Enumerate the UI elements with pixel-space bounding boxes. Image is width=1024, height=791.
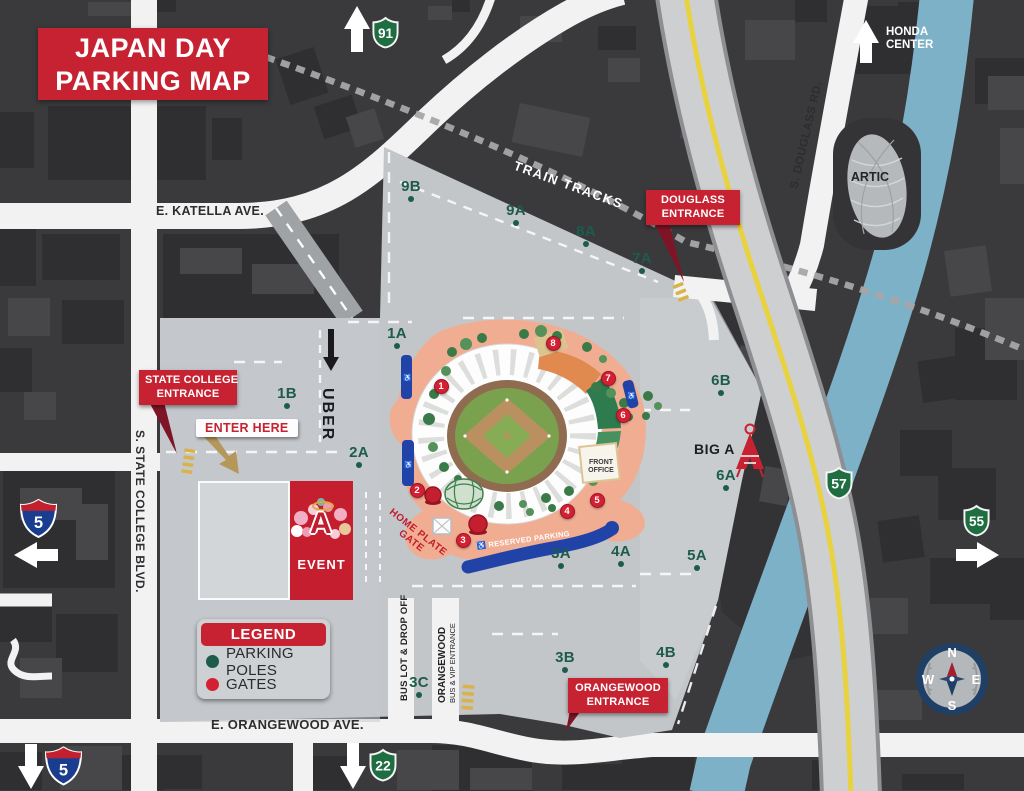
gate-1: 1 — [434, 379, 449, 394]
parking-pole-4B: 4B — [646, 646, 686, 660]
parking-pole-2A: 2A — [339, 446, 379, 460]
title-line1: JAPAN DAY — [38, 32, 268, 65]
legend-item-parking-poles: PARKING POLES — [197, 650, 330, 673]
wheelchair-icon: ♿ — [627, 391, 636, 400]
route-57-number: 57 — [831, 476, 847, 492]
vip-entrance-line1: ORANGEWOOD — [437, 623, 448, 703]
parking-pole-6A: 6A — [706, 469, 746, 483]
parking-pole-dot-icon — [206, 655, 219, 668]
honda-center-line1: HONDA — [886, 26, 933, 39]
interstate-5-shield-south: 5 — [44, 745, 83, 787]
wheelchair-icon: ♿ — [476, 541, 487, 551]
vip-entrance-line2: BUS & VIP ENTRANCE — [448, 623, 457, 703]
uber-lane-label: UBER — [318, 388, 336, 441]
interstate-5-number: 5 — [59, 761, 68, 780]
gate-5: 5 — [590, 493, 605, 508]
event-parking-lot — [198, 481, 290, 600]
big-a-label: BIG A — [694, 441, 735, 457]
parking-pole-1A: 1A — [377, 327, 417, 341]
gate-4: 4 — [560, 504, 575, 519]
front-office-label: FRONT OFFICE — [581, 459, 621, 475]
gate-6: 6 — [616, 408, 631, 423]
compass-w: W — [922, 672, 935, 687]
parking-pole-9A: 9A — [496, 204, 536, 218]
orangewood-ave-label: E. ORANGEWOOD AVE. — [211, 717, 364, 732]
gate-3: 3 — [456, 533, 471, 548]
artic-station — [833, 118, 921, 250]
state-college-entrance-badge: STATE COLLEGE ENTRANCE — [139, 370, 237, 405]
front-office-line1: FRONT — [581, 459, 621, 467]
parking-pole-5A: 5A — [677, 549, 717, 563]
parking-pole-3C: 3C — [399, 676, 439, 690]
wheelchair-icon: ♿ — [404, 460, 413, 469]
route-57-shield: 57 — [824, 466, 854, 500]
route-91-number: 91 — [378, 26, 394, 41]
legend: LEGEND PARKING POLES GATES — [197, 619, 330, 699]
team-store — [433, 518, 451, 534]
parking-pole-3A: 3A — [541, 547, 581, 561]
parking-pole-9B: 9B — [391, 180, 431, 194]
legend-parking-poles-label: PARKING POLES — [226, 645, 330, 679]
gate-8: 8 — [546, 336, 561, 351]
douglass-entrance-line2: ENTRANCE — [652, 207, 734, 221]
title-line2: PARKING MAP — [38, 65, 268, 98]
interstate-5-number: 5 — [34, 513, 43, 532]
honda-center-line2: CENTER — [886, 39, 933, 52]
douglass-entrance-line1: DOUGLASS — [652, 193, 734, 207]
honda-center-label: HONDA CENTER — [886, 26, 933, 52]
compass-rose: N E S W — [914, 641, 990, 717]
compass-e: E — [972, 672, 981, 687]
douglass-entrance-badge: DOUGLASS ENTRANCE — [646, 190, 740, 225]
parking-pole-1B: 1B — [267, 387, 307, 401]
route-22-number: 22 — [375, 758, 391, 774]
event-label: EVENT — [290, 557, 353, 572]
angels-a-logo-icon: A — [310, 507, 332, 541]
gate-2: 2 — [410, 483, 425, 498]
legend-header: LEGEND — [201, 623, 326, 646]
compass-s: S — [948, 698, 957, 713]
interstate-5-shield: 5 — [19, 498, 58, 539]
pitchers-mound — [504, 433, 510, 439]
route-55-shield: 55 — [962, 504, 991, 537]
legend-gates-label: GATES — [226, 676, 277, 693]
parking-pole-4A: 4A — [601, 545, 641, 559]
character-icon — [339, 523, 351, 535]
front-office-line2: OFFICE — [581, 467, 621, 475]
flower-icon — [294, 511, 308, 525]
compass-n: N — [947, 645, 956, 660]
route-22-shield: 22 — [368, 748, 398, 782]
artic-label: ARTIC — [849, 170, 891, 184]
vip-entrance-label: ORANGEWOOD BUS & VIP ENTRANCE — [437, 623, 457, 703]
parking-map: ♿ ♿ ♿ JAPAN DAY PARKING MAP 91 57 55 22 — [0, 0, 1024, 791]
parking-pole-8A: 8A — [566, 225, 606, 239]
lattice-dome — [445, 479, 483, 509]
katella-ave-label: E. KATELLA AVE. — [156, 204, 264, 218]
parking-pole-6B: 6B — [701, 374, 741, 388]
orangewood-entrance-badge: ORANGEWOOD ENTRANCE — [568, 678, 668, 713]
state-college-entrance-line2: ENTRANCE — [145, 387, 231, 401]
orangewood-entrance-line1: ORANGEWOOD — [574, 681, 662, 695]
route-55-number: 55 — [969, 514, 985, 529]
gate-7: 7 — [601, 371, 616, 386]
enter-here-callout: ENTER HERE — [196, 419, 298, 437]
event-block: A EVENT — [290, 481, 353, 600]
route-91-shield: 91 — [371, 16, 400, 49]
orangewood-entrance-line2: ENTRANCE — [574, 695, 662, 709]
parking-pole-7A: 7A — [622, 252, 662, 266]
state-college-entrance-line1: STATE COLLEGE — [145, 373, 231, 387]
state-college-blvd-label: S. STATE COLLEGE BLVD. — [133, 430, 147, 593]
gate-dot-icon — [206, 678, 219, 691]
parking-pole-3B: 3B — [545, 651, 585, 665]
wheelchair-icon: ♿ — [403, 373, 412, 382]
title-banner: JAPAN DAY PARKING MAP — [38, 28, 268, 100]
flower-icon — [334, 508, 347, 521]
